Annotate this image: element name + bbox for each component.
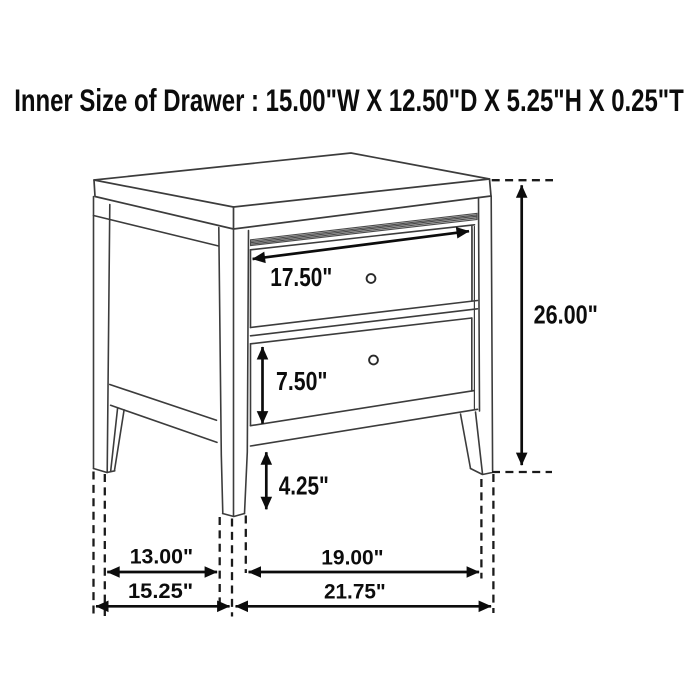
svg-text:Inner Size of Drawer : 15.00"W: Inner Size of Drawer : 15.00"W X 12.50"D…	[14, 82, 684, 118]
svg-text:26.00": 26.00"	[534, 301, 598, 329]
svg-text:15.25": 15.25"	[128, 579, 193, 603]
svg-text:7.50": 7.50"	[276, 368, 328, 396]
svg-text:4.25": 4.25"	[279, 473, 329, 501]
svg-text:19.00": 19.00"	[321, 545, 383, 569]
svg-text:13.00": 13.00"	[130, 544, 193, 568]
svg-text:17.50": 17.50"	[270, 264, 332, 292]
svg-text:21.75": 21.75"	[324, 579, 386, 603]
